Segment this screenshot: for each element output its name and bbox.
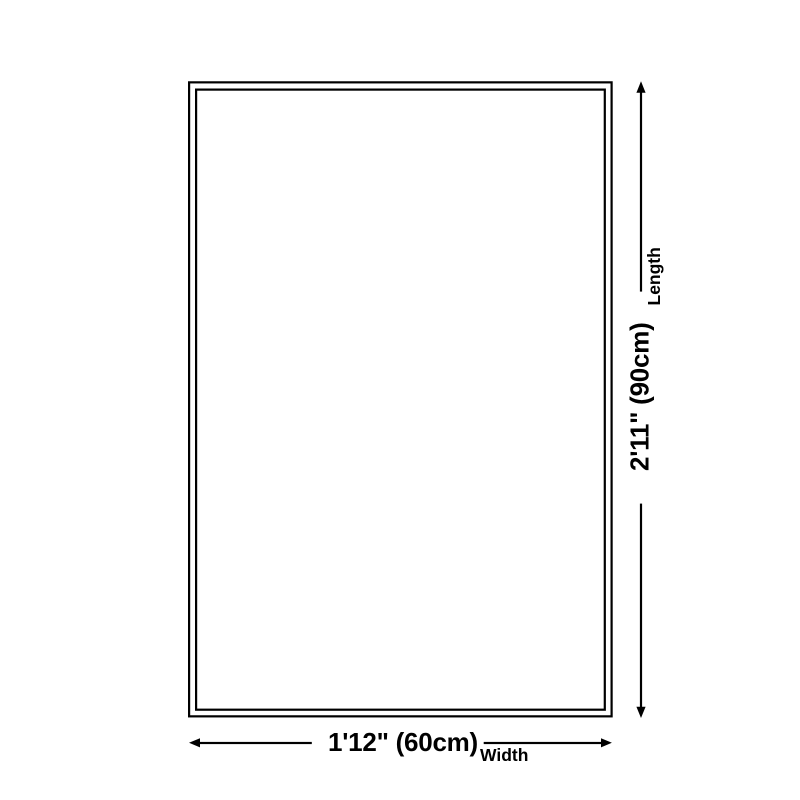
- svg-text:1'12" (60cm): 1'12" (60cm): [328, 727, 478, 757]
- svg-text:Width: Width: [480, 745, 528, 765]
- svg-text:2'11" (90cm): 2'11" (90cm): [624, 323, 654, 472]
- svg-text:Length: Length: [644, 247, 664, 305]
